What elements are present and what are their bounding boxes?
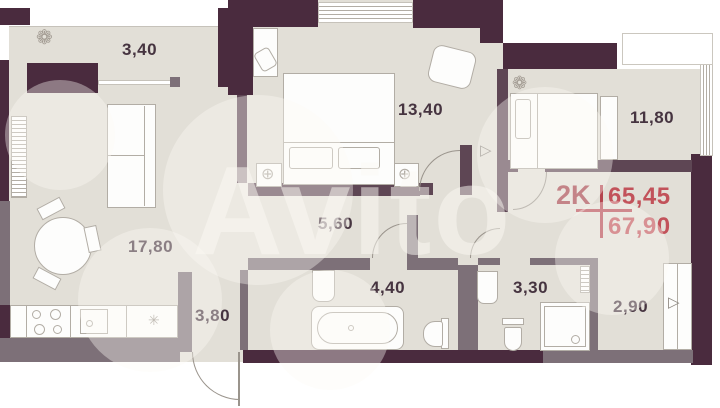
room-label-corridor: 5,60 [318,214,353,234]
stove-burner [34,324,45,335]
room-label-bathroom: 4,40 [370,278,405,298]
sofa-cushion-line [108,155,144,156]
glazing-post [170,77,180,87]
room-label-hallway: 3,80 [195,306,230,326]
bathtub-basin [317,312,398,344]
bedroom2-window [700,64,713,156]
wall-bottom-right [543,350,693,363]
sofa [107,104,156,208]
wall-corridor-right [407,215,418,270]
bed-frame-line [537,94,538,168]
wall-left-upper [0,60,9,201]
wall-wc-entry [590,265,598,350]
dresser [600,96,618,160]
toilet-bowl [423,321,443,347]
wardrobe-door-icon: ▷ [668,295,680,310]
stove-burner [32,310,41,319]
area-total-value: 67,90 [608,213,671,241]
bed-frame-line [284,142,394,143]
wall-top-b [413,0,480,28]
wall-wc-top-a [478,258,500,265]
wall-top-left-block [0,8,30,25]
balcony-glazing [98,80,172,85]
sink-drain [86,320,93,327]
pillow [515,99,531,139]
area-cross-vbar [600,185,603,238]
lamp-icon: ⊕ [261,167,274,183]
room-label-bedroom-2: 11,80 [630,108,674,128]
towel-radiator [580,266,590,293]
counter-divider [26,306,27,337]
plant-icon: ❁ [512,74,527,92]
toilet-bowl [504,327,522,351]
radiator [11,116,27,198]
wall-top-a [253,0,318,27]
wall-bathroom-top [418,258,458,270]
counter-divider [70,306,71,337]
wc-sink [477,271,498,304]
stove-burner [50,309,61,320]
wall-bedroom1-left [228,0,253,95]
wall-wc-top-b [530,258,598,265]
room-label-wc: 3,30 [513,278,548,298]
kitchen-sink [80,309,108,334]
wall-balcony-bottom [27,63,98,93]
counter-divider [126,306,127,337]
floorplan: ✳ ⊕ ⊕ ❁ ❁ ▷ ▷ 3,40 13,40 11,80 17,80 5,6… [0,0,720,408]
dining-table [34,217,92,275]
wall-bedrooms-divider [497,69,508,212]
entrance-door-leaf [238,352,240,406]
wall-bathroom-wc [458,265,478,350]
area-living-value: 65,45 [608,183,671,211]
wall-kitchen-hall [178,272,192,352]
stove-burner [53,325,62,334]
bathtub-drain [348,325,354,331]
wall-left-mid [0,201,10,305]
wall-corridor-b [273,258,370,270]
pillow [289,147,333,169]
apartment-type: 2K [556,180,591,211]
door-arc-entrance [192,352,240,400]
room-label-entry: 2,90 [613,297,648,317]
wall-right [691,154,712,365]
wall-living-bedroom1 [237,95,247,183]
wall-corridor-a [248,258,273,270]
wall-top-step [480,0,503,43]
bedroom1-window [318,2,413,23]
bathroom-sink [312,270,335,302]
wall-bottom-middle [243,350,543,363]
wall-bedroom2-top [503,43,617,69]
toilet-tank [502,318,524,325]
room-label-bedroom-1: 13,40 [398,100,443,120]
plant-icon: ❁ [36,28,53,48]
fridge-snowflake-icon: ✳ [148,313,160,327]
sofa-back-line [144,106,145,206]
door-leaf-icon: ▷ [480,143,492,158]
room-label-balcony: 3,40 [122,40,157,60]
lamp-icon: ⊕ [398,167,411,183]
pillow [338,147,380,169]
wall-bottom-left [0,338,180,362]
neighbor-balcony-outline [622,33,713,65]
shower-drain [571,335,580,344]
wall-bathroom-left [240,270,248,350]
room-label-living-kitchen: 17,80 [128,237,173,257]
wall-bedroom1-right [460,145,472,195]
